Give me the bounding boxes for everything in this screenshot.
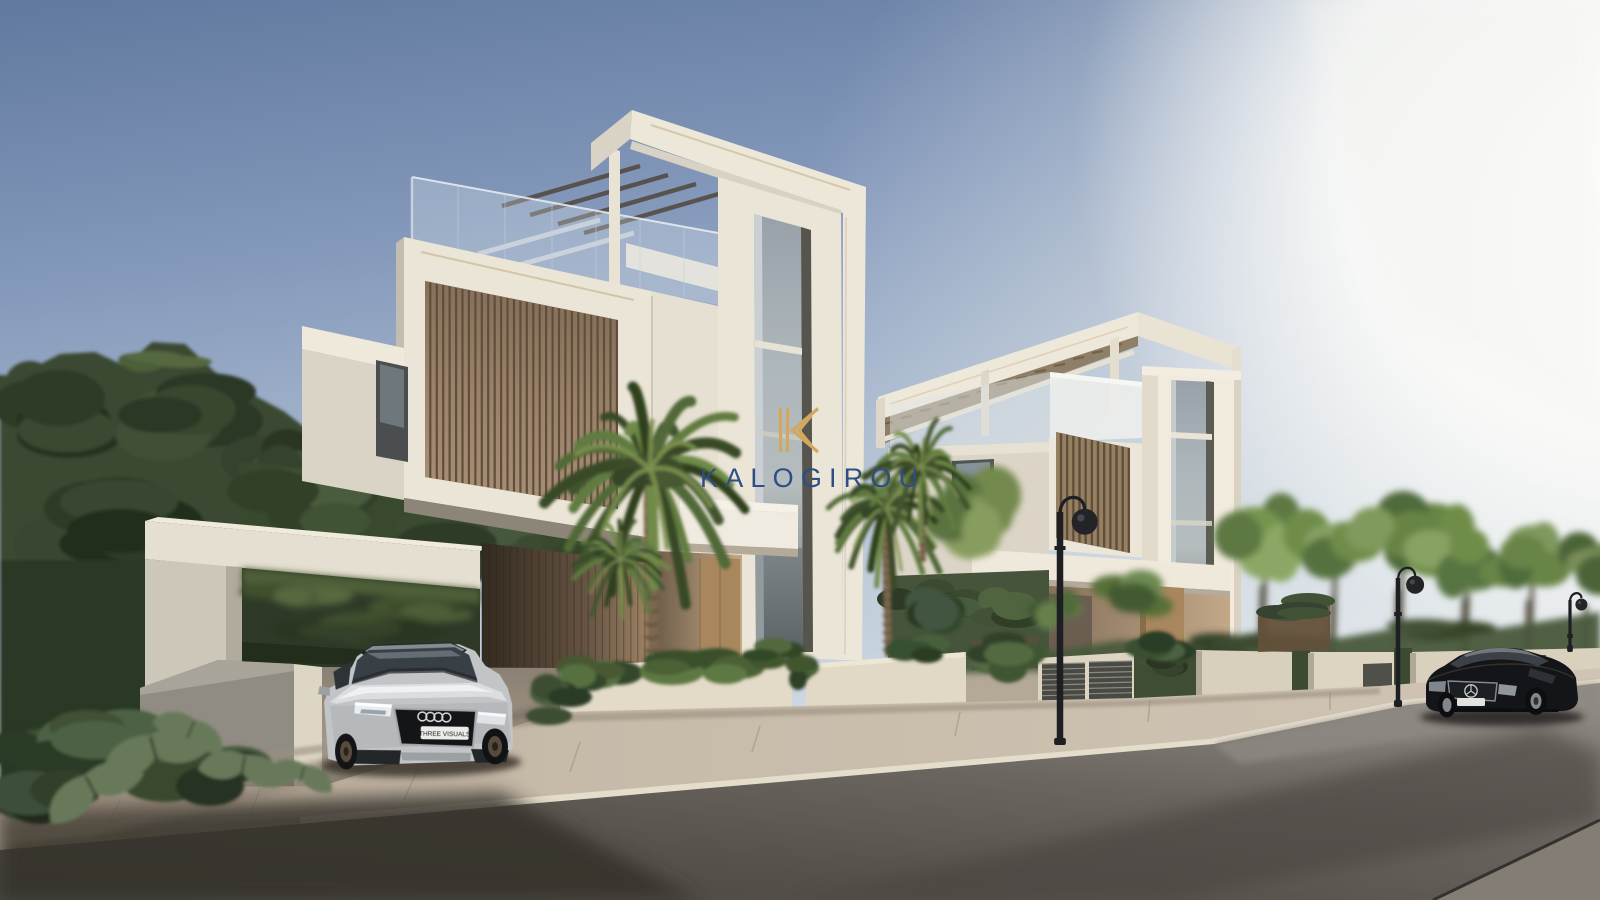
svg-text:THREE VISUALS: THREE VISUALS: [419, 731, 471, 739]
svg-text:KALOGIROU: KALOGIROU: [700, 463, 925, 493]
